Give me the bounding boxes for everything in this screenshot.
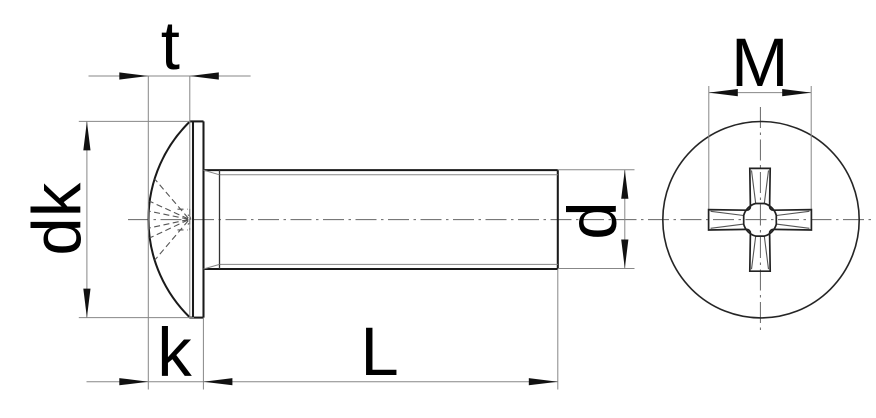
svg-text:M: M	[731, 24, 788, 101]
svg-text:k: k	[157, 314, 192, 391]
svg-text:L: L	[360, 313, 398, 390]
svg-text:t: t	[161, 7, 180, 84]
svg-text:d: d	[554, 201, 631, 239]
svg-text:dk: dk	[19, 182, 96, 255]
